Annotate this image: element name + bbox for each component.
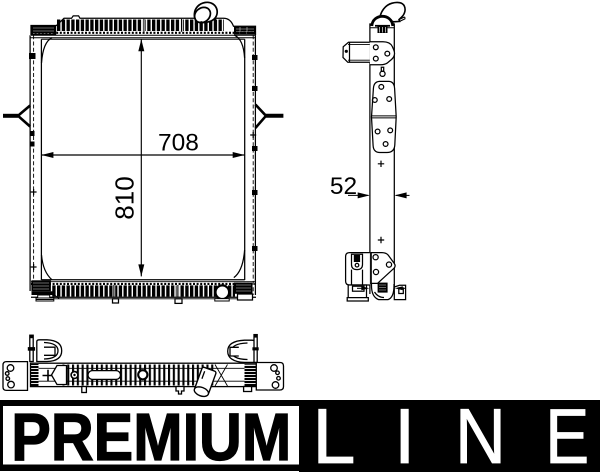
svg-text:PREMIUM: PREMIUM	[11, 401, 291, 472]
svg-text:52: 52	[330, 173, 357, 200]
svg-text:I: I	[394, 394, 416, 472]
svg-text:N: N	[455, 393, 506, 472]
svg-text:L: L	[312, 394, 355, 472]
svg-text:E: E	[545, 394, 589, 472]
svg-text:810: 810	[110, 176, 140, 219]
svg-text:708: 708	[158, 130, 199, 157]
